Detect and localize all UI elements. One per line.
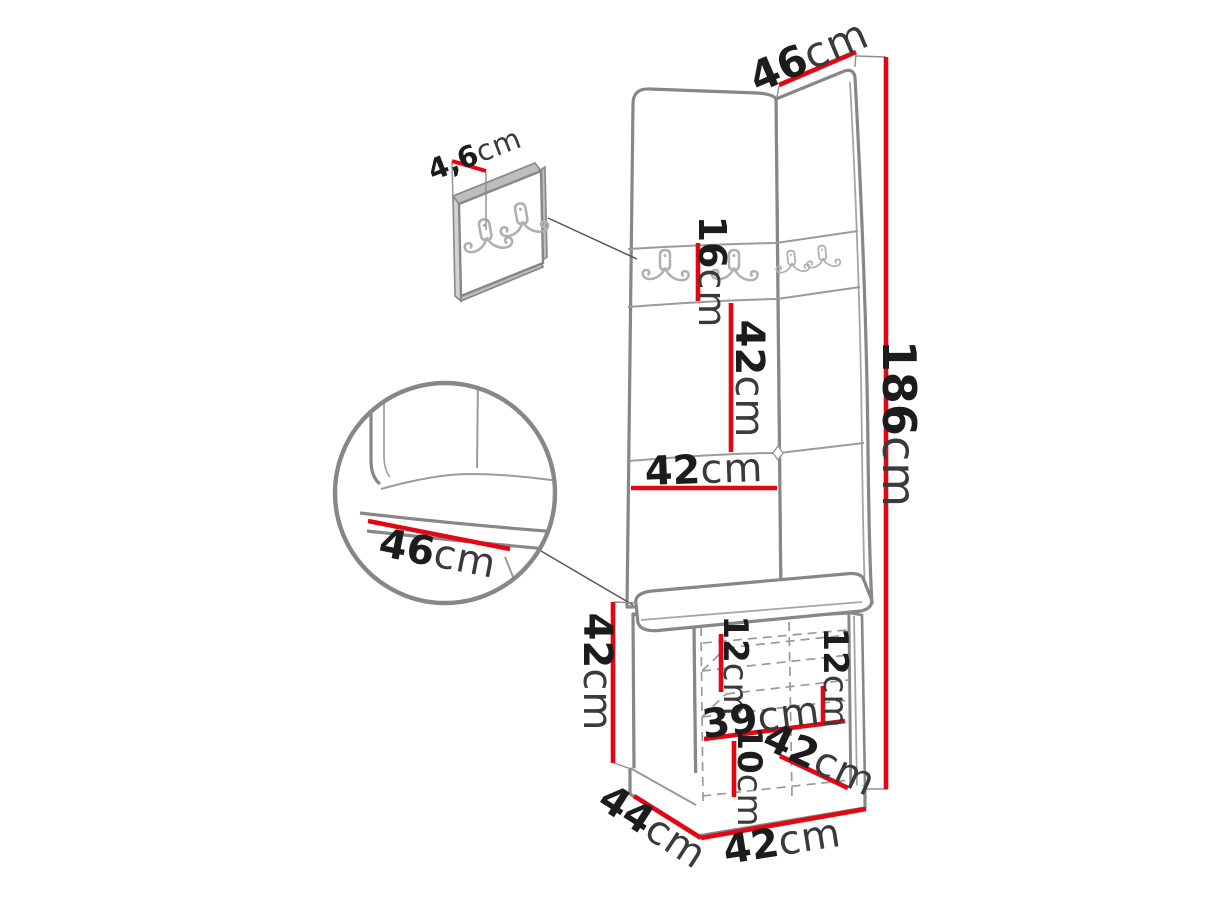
label-upper-compartment-right: 12cm [815,627,855,728]
label-total-height: 186cm [872,340,926,508]
diagram-svg: 46cm 4,6cm 16cm 42cm 186cm 42cm 46cm 42c… [0,0,1214,911]
label-middle-panel-height: 42cm [726,320,772,439]
label-left-panel-width: 42cm [644,445,764,495]
detail-connector-line [548,218,637,259]
furniture-dimension-diagram: 46cm 4,6cm 16cm 42cm 186cm 42cm 46cm 42c… [0,0,1214,911]
hook-board-detail [452,163,637,301]
circle-connector-line [541,551,633,605]
label-bench-height: 42cm [574,613,620,732]
panel-right-face [776,70,872,605]
label-hook-strip-height: 16cm [690,216,734,329]
